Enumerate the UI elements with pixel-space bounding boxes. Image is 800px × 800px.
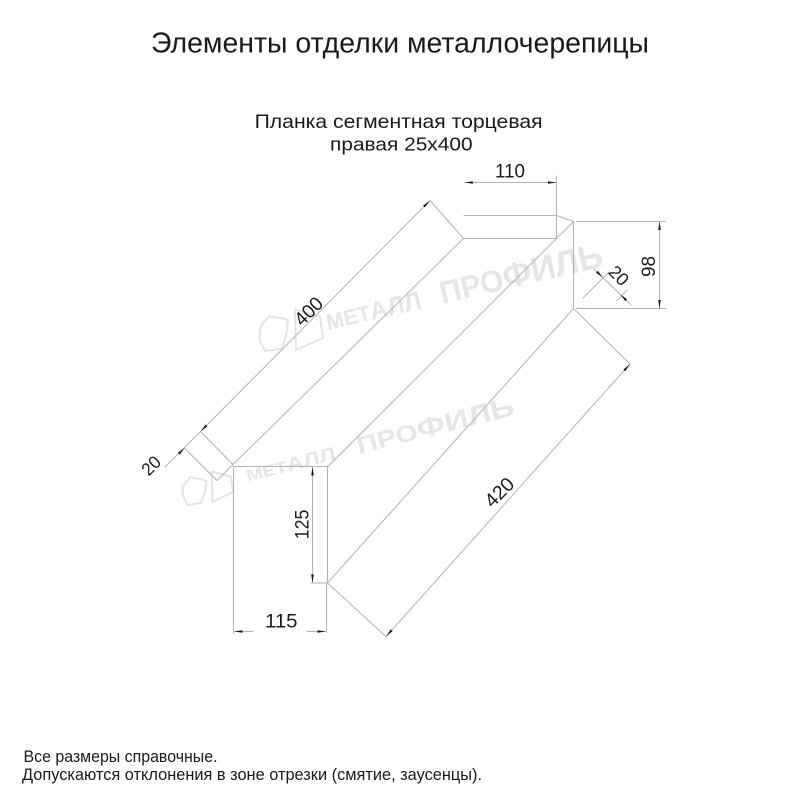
svg-text:98: 98 <box>638 256 660 277</box>
svg-text:МЕТАЛЛ ПРОФИЛЬ: МЕТАЛЛ ПРОФИЛЬ <box>242 391 517 487</box>
svg-text:Планка сегментная торцевая: Планка сегментная торцевая <box>255 111 543 133</box>
svg-text:115: 115 <box>265 611 298 633</box>
svg-text:Допускаются отклонения в зоне: Допускаются отклонения в зоне отрезки (с… <box>22 766 482 784</box>
svg-text:Все размеры справочные.: Все размеры справочные. <box>24 748 218 766</box>
svg-text:20: 20 <box>137 452 165 480</box>
svg-text:420: 420 <box>480 473 519 512</box>
svg-text:МЕТАЛЛ ПРОФИЛЬ: МЕТАЛЛ ПРОФИЛЬ <box>321 236 606 338</box>
svg-text:20: 20 <box>605 262 633 290</box>
svg-text:110: 110 <box>495 160 525 182</box>
svg-text:125: 125 <box>292 509 314 539</box>
svg-text:правая 25х400: правая 25х400 <box>330 134 473 155</box>
svg-text:Элементы отделки металлочерепи: Элементы отделки металлочерепицы <box>151 27 649 59</box>
